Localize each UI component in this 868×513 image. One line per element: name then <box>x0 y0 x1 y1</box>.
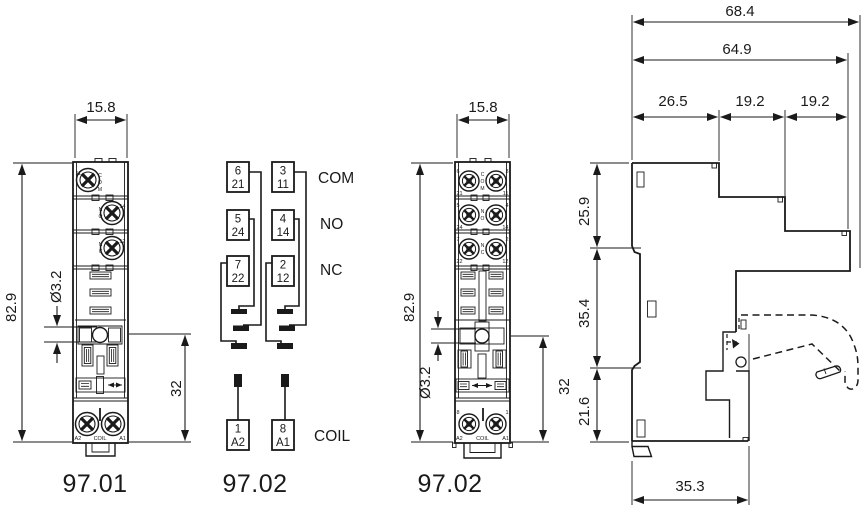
mounting-hole <box>475 329 489 343</box>
pin-6: 6 <box>457 169 460 175</box>
clip-pivot <box>736 357 746 367</box>
dim-seg2: 19.2 <box>735 93 764 110</box>
coil-terminals-9702: 8 A2 COIL 1 A1 <box>453 408 513 458</box>
label-no: NO <box>320 216 343 233</box>
coil-terminals-9701: A2 COIL A1 <box>75 408 127 456</box>
contact-bar <box>277 309 293 314</box>
label-a1: A1 <box>502 436 509 442</box>
hole-leader-lines <box>44 327 97 342</box>
screw-icon <box>76 413 99 436</box>
pin-7: 7 <box>235 260 241 272</box>
pin-4: 4 <box>280 214 287 226</box>
contact-bar <box>233 326 249 332</box>
dim-offset-9702: 32 <box>556 378 573 395</box>
screw-icon <box>459 171 479 191</box>
pin-12: 12 <box>502 259 508 265</box>
pin-2: 2 <box>280 260 286 272</box>
relay-socket-dimension-drawing: 15.8 82.9 Ø3.2 32 <box>0 0 868 513</box>
ext-lines <box>632 446 749 505</box>
mounting-hole <box>93 328 108 343</box>
pin-24: 24 <box>457 225 463 231</box>
dim-hole-9702: Ø3.2 <box>417 366 434 399</box>
ext-lines <box>75 114 127 158</box>
side-view: 68.4 64.9 26.5 19.2 19.2 25.9 35.4 21.6 … <box>576 3 860 505</box>
dim-body-width: 64.9 <box>722 41 751 58</box>
label-m: M <box>480 186 484 192</box>
label-c: C <box>481 250 485 256</box>
pin-1: 1 <box>505 410 508 416</box>
coil-pin <box>281 374 289 387</box>
label-n: N <box>99 207 103 213</box>
dim-base: 35.3 <box>675 478 704 495</box>
pin-21: 21 <box>232 179 245 191</box>
pin-3: 3 <box>505 169 508 175</box>
screw-icon <box>486 239 506 259</box>
label-c: C <box>98 173 102 179</box>
dim-seg3: 19.2 <box>800 93 829 110</box>
label-com: COM <box>318 170 354 187</box>
label-o: O <box>481 216 485 222</box>
pin-7: 7 <box>457 237 460 243</box>
contact-bar <box>277 343 293 349</box>
socket-body-9702 <box>455 159 510 444</box>
screw-icon <box>486 414 506 434</box>
retaining-clip-extended <box>741 315 858 389</box>
label-a1: A1 <box>119 436 126 442</box>
label-o: O <box>481 179 485 185</box>
pin-6: 6 <box>235 166 241 178</box>
label-a2: A2 <box>75 436 82 442</box>
screw-icon <box>102 413 125 436</box>
label-o: O <box>98 180 102 186</box>
dim-width-9702: 15.8 <box>468 99 497 116</box>
screw-icon <box>459 205 479 225</box>
socket-middle-9701 <box>75 272 126 394</box>
label-coil: COIL <box>476 436 489 442</box>
pin-14: 14 <box>277 227 290 239</box>
terminal-screws-9702: 6 21 C O M 3 11 5 24 N O 4 14 7 22 N C 2… <box>457 169 509 265</box>
front-view-9702: 15.8 82.9 Ø3.2 32 6 21 <box>401 99 573 498</box>
pin-24: 24 <box>232 227 245 239</box>
dim-h3: 21.6 <box>576 397 593 426</box>
pin-2: 2 <box>505 237 508 243</box>
label-a2: A2 <box>456 436 463 442</box>
pin-a2: A2 <box>231 437 245 449</box>
screw-icon <box>459 414 479 434</box>
pin-5: 5 <box>457 203 460 209</box>
caption-9702-front: 97.02 <box>417 470 482 498</box>
terminal-11: 11 <box>76 171 82 177</box>
pin-21: 21 <box>457 191 463 197</box>
pin-1: 1 <box>235 424 241 436</box>
socket-body-9701 <box>73 159 128 444</box>
label-c: C <box>481 172 485 178</box>
label-m: M <box>98 187 102 193</box>
label-coil: COIL <box>94 436 107 442</box>
dim-hole-9701: Ø3.2 <box>48 270 65 303</box>
din-rail-foot <box>632 441 652 457</box>
label-nc: NC <box>320 262 342 279</box>
side-profile <box>632 163 850 457</box>
label-n: N <box>481 243 485 249</box>
dim-h1: 25.9 <box>576 197 593 226</box>
schematic-9702: 6 21 3 11 COM 5 24 4 14 NO 7 22 2 12 NC … <box>221 162 354 498</box>
terminal-14: 14 <box>119 204 125 210</box>
coil-pin <box>234 374 242 387</box>
label-n: N <box>99 242 103 248</box>
ext-lines <box>457 114 509 158</box>
pin-8: 8 <box>280 424 286 436</box>
contact-bar <box>279 326 295 332</box>
pin-4: 4 <box>505 203 508 209</box>
label-c: C <box>99 249 103 255</box>
dim-width-9701: 15.8 <box>86 99 115 116</box>
terminal-screws-9701: 11 C O M N O 14 N C 12 <box>76 169 126 260</box>
terminal-12: 12 <box>119 239 125 245</box>
pin-14: 14 <box>502 225 508 231</box>
pin-3: 3 <box>280 166 286 178</box>
pin-5: 5 <box>235 214 241 226</box>
din-foot <box>86 443 115 456</box>
dim-h2: 35.4 <box>576 299 593 328</box>
front-view-9701: 15.8 82.9 Ø3.2 32 <box>3 99 191 498</box>
contact-bar <box>231 309 247 314</box>
label-o: O <box>99 214 103 220</box>
dim-seg1: 26.5 <box>658 93 687 110</box>
dim-total-width: 68.4 <box>725 3 754 20</box>
dim-offset-9701: 32 <box>168 380 185 397</box>
clip-detail <box>732 339 740 349</box>
screw-icon <box>459 239 479 259</box>
pin-8: 8 <box>457 410 460 416</box>
pin-a1: A1 <box>276 437 290 449</box>
label-coil: COIL <box>314 428 351 445</box>
technical-drawing: 15.8 82.9 Ø3.2 32 <box>0 0 868 513</box>
socket-middle-9702 <box>455 271 510 392</box>
label-n: N <box>481 209 485 215</box>
screw-icon <box>486 205 506 225</box>
pin-11: 11 <box>277 179 289 191</box>
ext-lines <box>590 163 641 442</box>
dim-height-9702: 82.9 <box>401 293 418 322</box>
screw-icon <box>486 171 506 191</box>
hole-leader-lines <box>431 329 476 343</box>
pin-22: 22 <box>232 273 245 285</box>
caption-9701: 97.01 <box>62 470 127 498</box>
pin-11: 11 <box>503 191 509 197</box>
pin-12: 12 <box>277 273 290 285</box>
pin-22: 22 <box>457 259 463 265</box>
contact-bar <box>231 343 247 349</box>
caption-schematic: 97.02 <box>222 470 287 498</box>
dim-height-9701: 82.9 <box>3 293 20 322</box>
